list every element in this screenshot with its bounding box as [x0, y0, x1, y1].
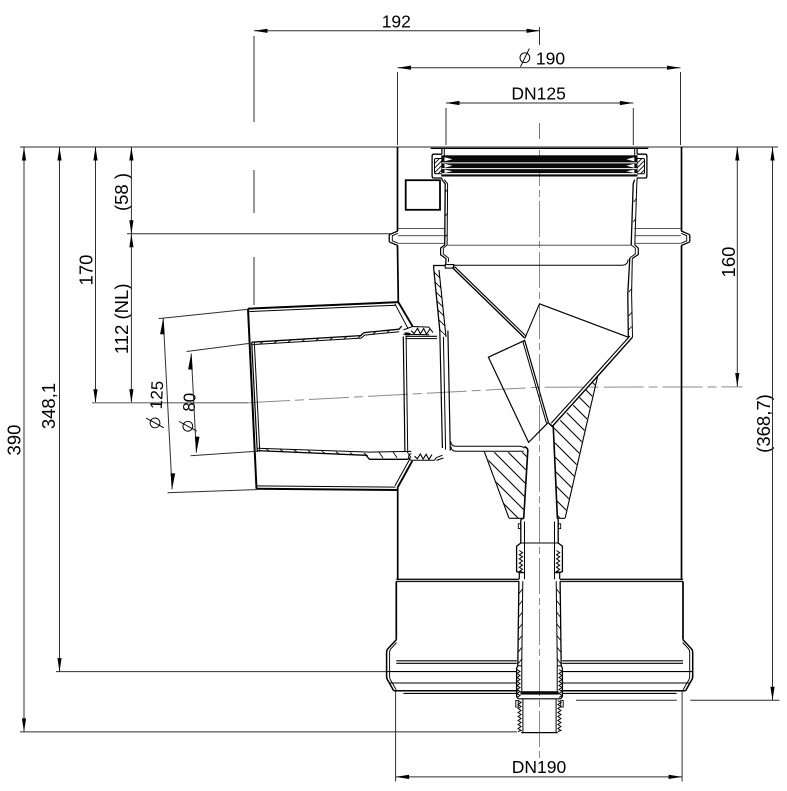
- svg-text:348,1: 348,1: [38, 383, 59, 429]
- svg-text:DN190: DN190: [512, 757, 567, 777]
- svg-text:190: 190: [536, 48, 565, 68]
- svg-text:112 (NL): 112 (NL): [111, 283, 132, 354]
- svg-text:192: 192: [382, 12, 411, 32]
- svg-text:125: 125: [147, 380, 167, 409]
- svg-text:170: 170: [76, 255, 97, 286]
- svg-text:80: 80: [180, 392, 200, 412]
- svg-text:(58 ): (58 ): [111, 173, 132, 211]
- svg-text:(368,7): (368,7): [753, 394, 774, 453]
- svg-text:160: 160: [718, 247, 739, 278]
- svg-text:DN125: DN125: [511, 83, 565, 103]
- svg-text:390: 390: [3, 425, 24, 456]
